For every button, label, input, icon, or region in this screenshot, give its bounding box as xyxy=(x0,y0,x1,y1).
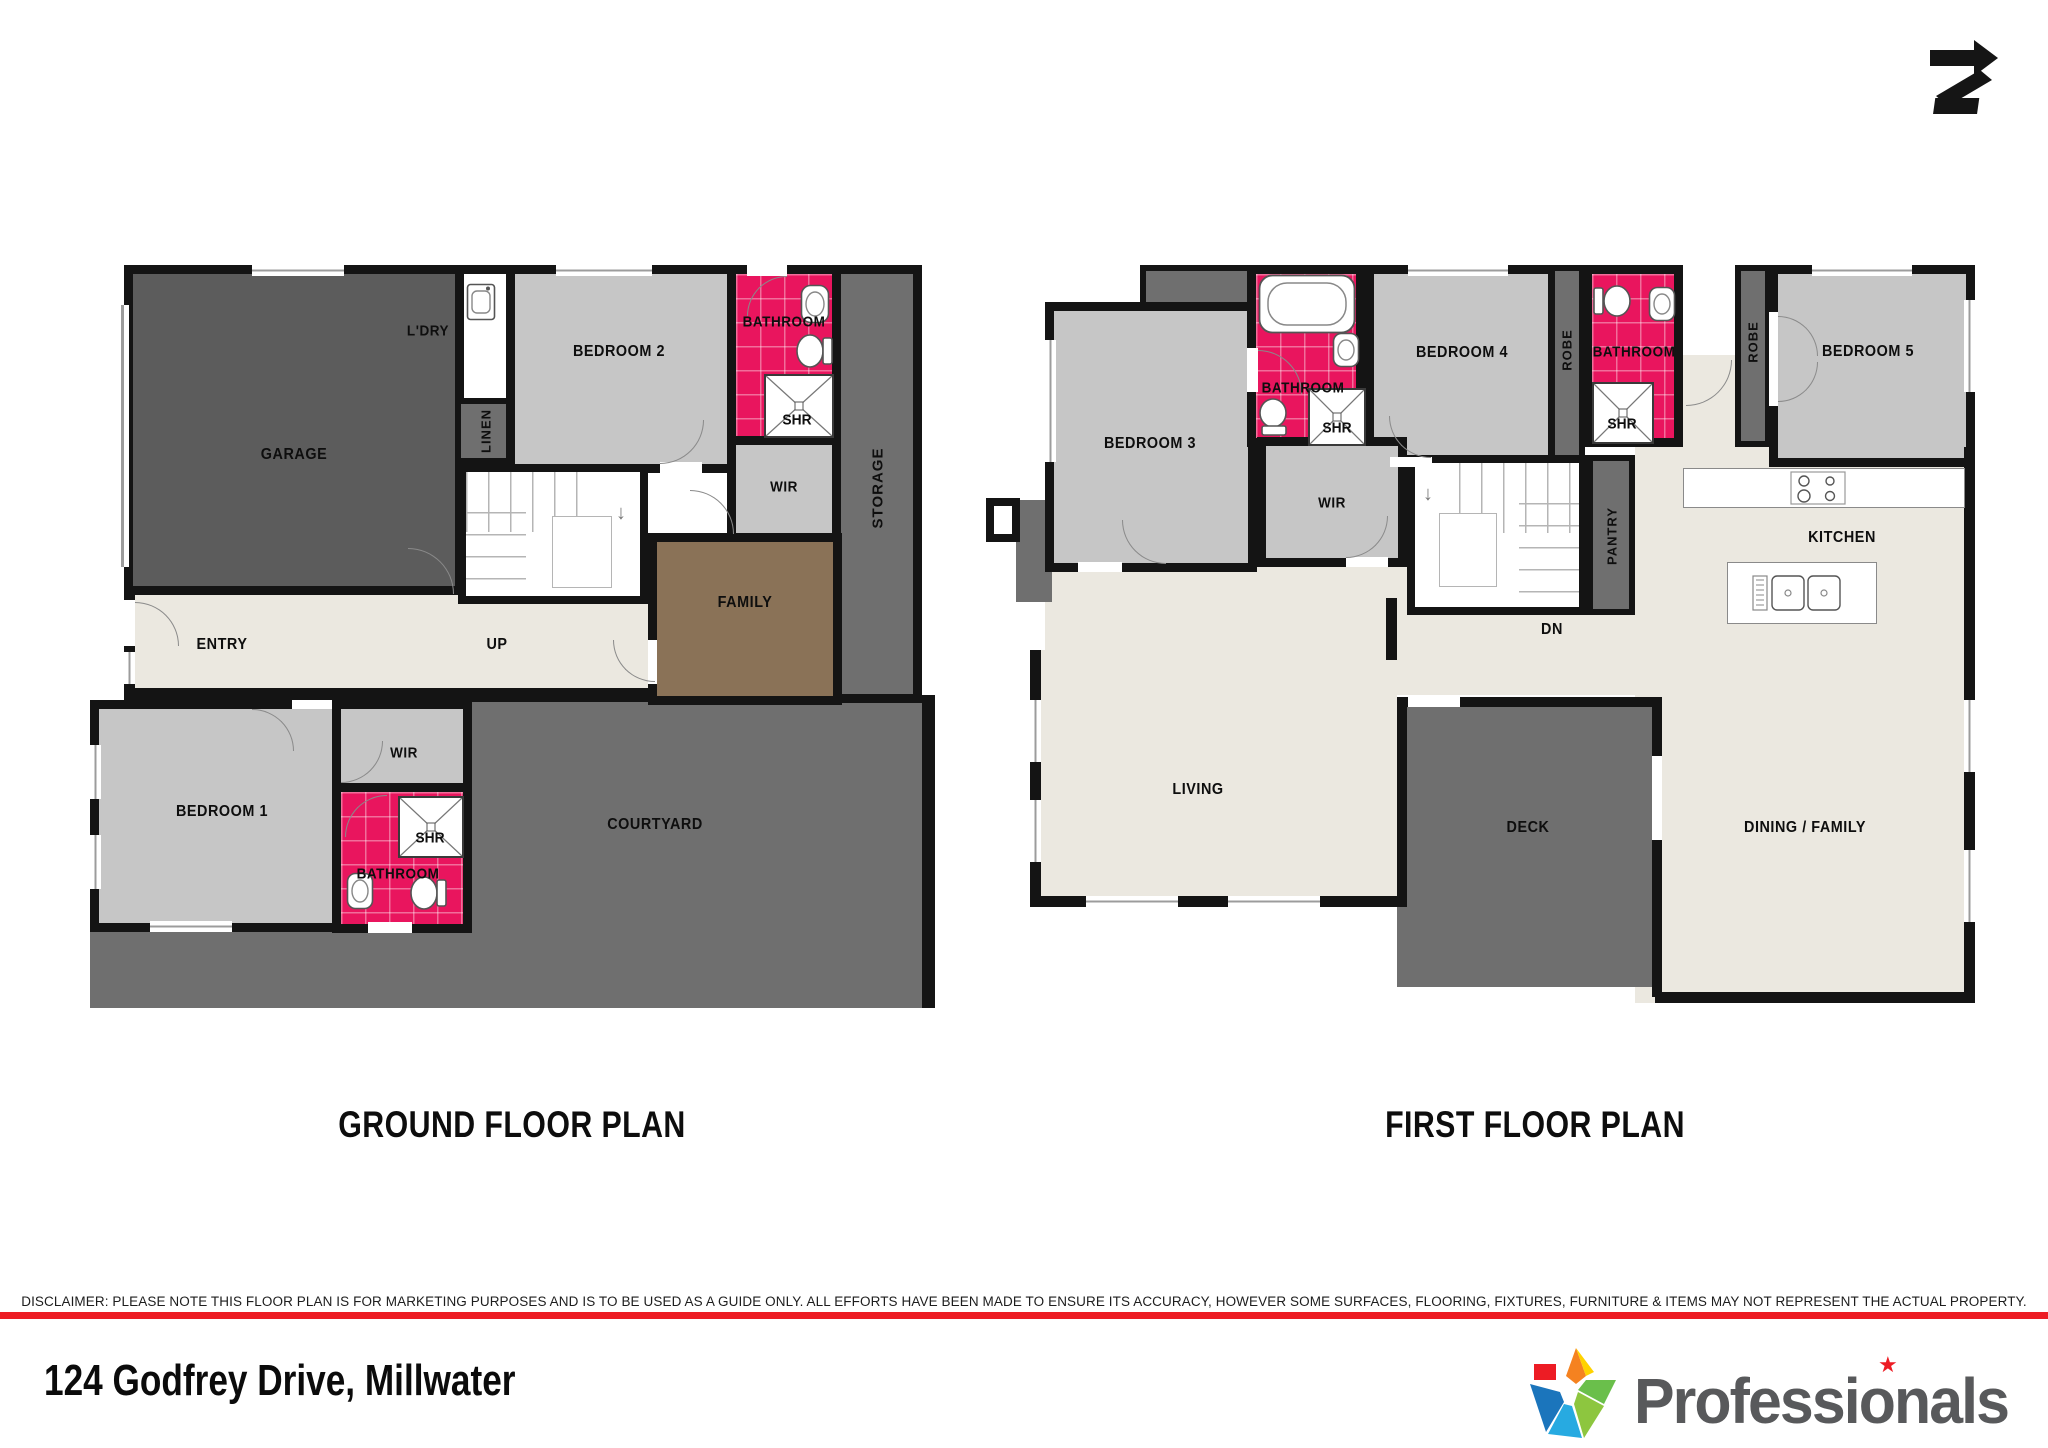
room-courtyard-lower xyxy=(90,930,477,1008)
room-dining-kitchen xyxy=(1635,447,1975,1003)
bedroom1-door-gap xyxy=(292,700,332,709)
deck-left-wall xyxy=(1397,697,1407,907)
room-label: BEDROOM 5 xyxy=(1822,343,1914,361)
window xyxy=(1030,800,1041,862)
room-label: BEDROOM 4 xyxy=(1416,344,1508,362)
room-label: GARAGE xyxy=(261,446,327,464)
divider-line xyxy=(0,1312,2048,1319)
window xyxy=(252,265,344,276)
basin-icon xyxy=(1332,332,1360,368)
room-label: ROBE xyxy=(1560,329,1575,371)
room-label: WIR xyxy=(1318,495,1346,512)
room-courtyard xyxy=(472,695,935,1008)
garage-door xyxy=(116,305,129,567)
front-door-gap xyxy=(124,600,135,646)
room-deck xyxy=(1397,697,1660,987)
courtyard-right-wall xyxy=(922,695,935,1008)
bathtub-icon xyxy=(1258,274,1356,334)
stairs-dn: ↓ xyxy=(1407,455,1587,615)
exterior-notch xyxy=(986,498,1020,542)
room-label: L'DRY xyxy=(407,323,449,340)
room-label: SHR xyxy=(1322,420,1351,437)
window xyxy=(1812,265,1912,276)
window xyxy=(1964,850,1975,922)
room-label: UP xyxy=(486,636,507,654)
room-bedroom2 xyxy=(506,265,736,473)
wir-door-gap xyxy=(1346,557,1388,567)
room-label: DINING / FAMILY xyxy=(1744,819,1866,837)
room-label: BATHROOM xyxy=(743,314,826,331)
wall-stub xyxy=(1386,598,1397,660)
room-label: WIR xyxy=(390,745,418,762)
room-label: LIVING xyxy=(1172,781,1223,799)
toilet-icon xyxy=(1256,396,1294,438)
shower-icon xyxy=(398,796,464,858)
window xyxy=(1045,340,1056,462)
window xyxy=(1964,700,1975,772)
room-label: BATHROOM xyxy=(357,866,440,883)
window xyxy=(150,921,232,932)
toilet-icon xyxy=(1592,282,1632,320)
property-address: 124 Godfrey Drive, Millwater xyxy=(44,1356,515,1406)
slider-door-gap xyxy=(1652,756,1662,840)
window xyxy=(90,835,101,889)
stair-arrow-icon: ↓ xyxy=(616,502,626,525)
ground-floor-title: GROUND FLOOR PLAN xyxy=(338,1104,685,1146)
room-label: BATHROOM xyxy=(1593,344,1676,361)
bathroom-door-gap xyxy=(747,265,787,276)
first-floor-title: FIRST FLOOR PLAN xyxy=(1385,1104,1685,1146)
room-family xyxy=(648,533,842,705)
basin-icon xyxy=(1648,286,1676,322)
room-label: FAMILY xyxy=(718,594,773,612)
window xyxy=(1964,300,1975,392)
stair-arrow-icon: ↓ xyxy=(1423,483,1433,506)
kitchen-sink-icon xyxy=(1752,572,1844,614)
brand-star-icon: ★ xyxy=(1878,1352,1898,1378)
room-label: COURTYARD xyxy=(607,816,703,834)
room-label: BEDROOM 3 xyxy=(1104,435,1196,453)
room-label: DECK xyxy=(1507,819,1550,837)
watermark-logo xyxy=(1922,36,2006,122)
room-label: SHR xyxy=(415,830,444,847)
deck-dining-wall xyxy=(1652,697,1662,997)
room-living xyxy=(1030,650,1397,907)
professionals-star-logo xyxy=(1520,1346,1632,1442)
shower-icon xyxy=(1308,388,1366,446)
room-label: BEDROOM 1 xyxy=(176,803,268,821)
room-label: PANTRY xyxy=(1605,507,1620,565)
room-label: KITCHEN xyxy=(1808,529,1876,547)
dining-bottom-wall xyxy=(1655,992,1975,1003)
room-label: BEDROOM 2 xyxy=(573,343,665,361)
window xyxy=(124,652,135,684)
floorplan-page: { "plans": [ { "title": "GROUND FLOOR PL… xyxy=(0,0,2048,1448)
room-label: DN xyxy=(1541,621,1563,639)
bedroom3-door-gap xyxy=(1078,562,1122,572)
bedroom2-door-gap xyxy=(660,462,702,473)
window xyxy=(1086,896,1178,907)
window xyxy=(556,265,652,276)
bathroom-door-gap xyxy=(368,922,412,933)
room-label: STORAGE xyxy=(870,448,887,529)
room-label: LINEN xyxy=(479,409,494,453)
room-label: ROBE xyxy=(1746,321,1761,363)
bedroom5-door-gap xyxy=(1769,312,1778,406)
stove-icon xyxy=(1790,471,1846,505)
ensuite-door-gap xyxy=(1247,348,1258,392)
room-label: BATHROOM xyxy=(1262,380,1345,397)
room-label: SHR xyxy=(1607,416,1636,433)
window xyxy=(1408,265,1508,276)
living-left-wall xyxy=(1030,650,1041,907)
window xyxy=(1030,700,1041,762)
room-label: ENTRY xyxy=(197,636,248,654)
professionals-wordmark: Professionals xyxy=(1634,1364,2008,1438)
shower-icon xyxy=(1592,382,1654,444)
room-label: SHR xyxy=(782,412,811,429)
window xyxy=(1228,896,1320,907)
laundry-tub-icon xyxy=(466,283,496,321)
room-garage xyxy=(124,265,464,595)
disclaimer-text: DISCLAIMER: PLEASE NOTE THIS FLOOR PLAN … xyxy=(21,1294,2027,1309)
bedroom4-door-gap xyxy=(1390,457,1432,467)
room-label: WIR xyxy=(770,479,798,496)
stairs-up: ↓ xyxy=(458,464,648,604)
window xyxy=(90,745,101,799)
deck-door-gap xyxy=(1408,697,1460,707)
toilet-icon xyxy=(794,332,834,370)
